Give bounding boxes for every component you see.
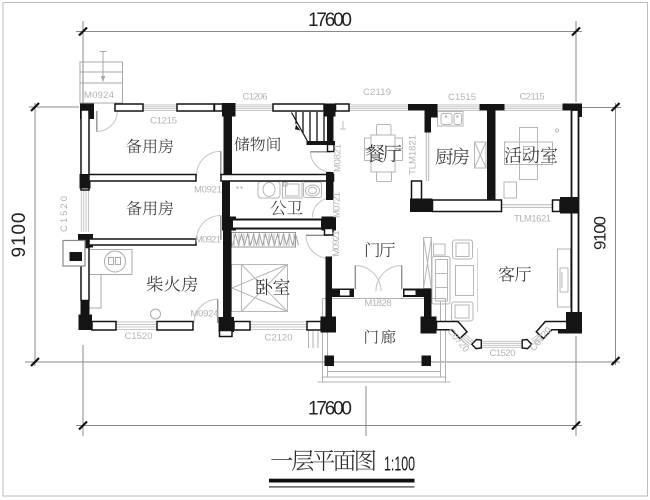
svg-text:M1828: M1828 xyxy=(365,298,392,309)
svg-text:17600: 17600 xyxy=(308,399,352,420)
svg-text:M0821: M0821 xyxy=(333,144,344,172)
svg-text:C0720: C0720 xyxy=(445,326,471,355)
svg-text:C2119: C2119 xyxy=(363,87,391,98)
svg-text:M0921: M0921 xyxy=(194,185,222,196)
svg-text:TLM1821: TLM1821 xyxy=(408,135,419,175)
svg-text:9100: 9100 xyxy=(9,213,30,258)
svg-text:M0921: M0921 xyxy=(195,235,221,246)
svg-text:C2120: C2120 xyxy=(265,333,293,344)
svg-text:C1520: C1520 xyxy=(490,348,516,359)
svg-text:C1520: C1520 xyxy=(59,196,70,232)
svg-text:TLM1621: TLM1621 xyxy=(514,214,551,225)
svg-text:M0721: M0721 xyxy=(332,192,343,218)
svg-text:C1206: C1206 xyxy=(243,92,268,103)
svg-text:C1520: C1520 xyxy=(125,331,153,342)
svg-text:C1515: C1515 xyxy=(448,92,476,103)
svg-text:C1215: C1215 xyxy=(150,116,177,127)
svg-text:C2115: C2115 xyxy=(520,92,545,103)
svg-text:9100: 9100 xyxy=(591,216,610,250)
svg-text:17600: 17600 xyxy=(308,10,352,31)
svg-text:M0924: M0924 xyxy=(191,309,219,320)
svg-text:M0921: M0921 xyxy=(331,231,342,257)
svg-text:M0924: M0924 xyxy=(84,90,114,101)
svg-text:1:100: 1:100 xyxy=(384,452,415,475)
